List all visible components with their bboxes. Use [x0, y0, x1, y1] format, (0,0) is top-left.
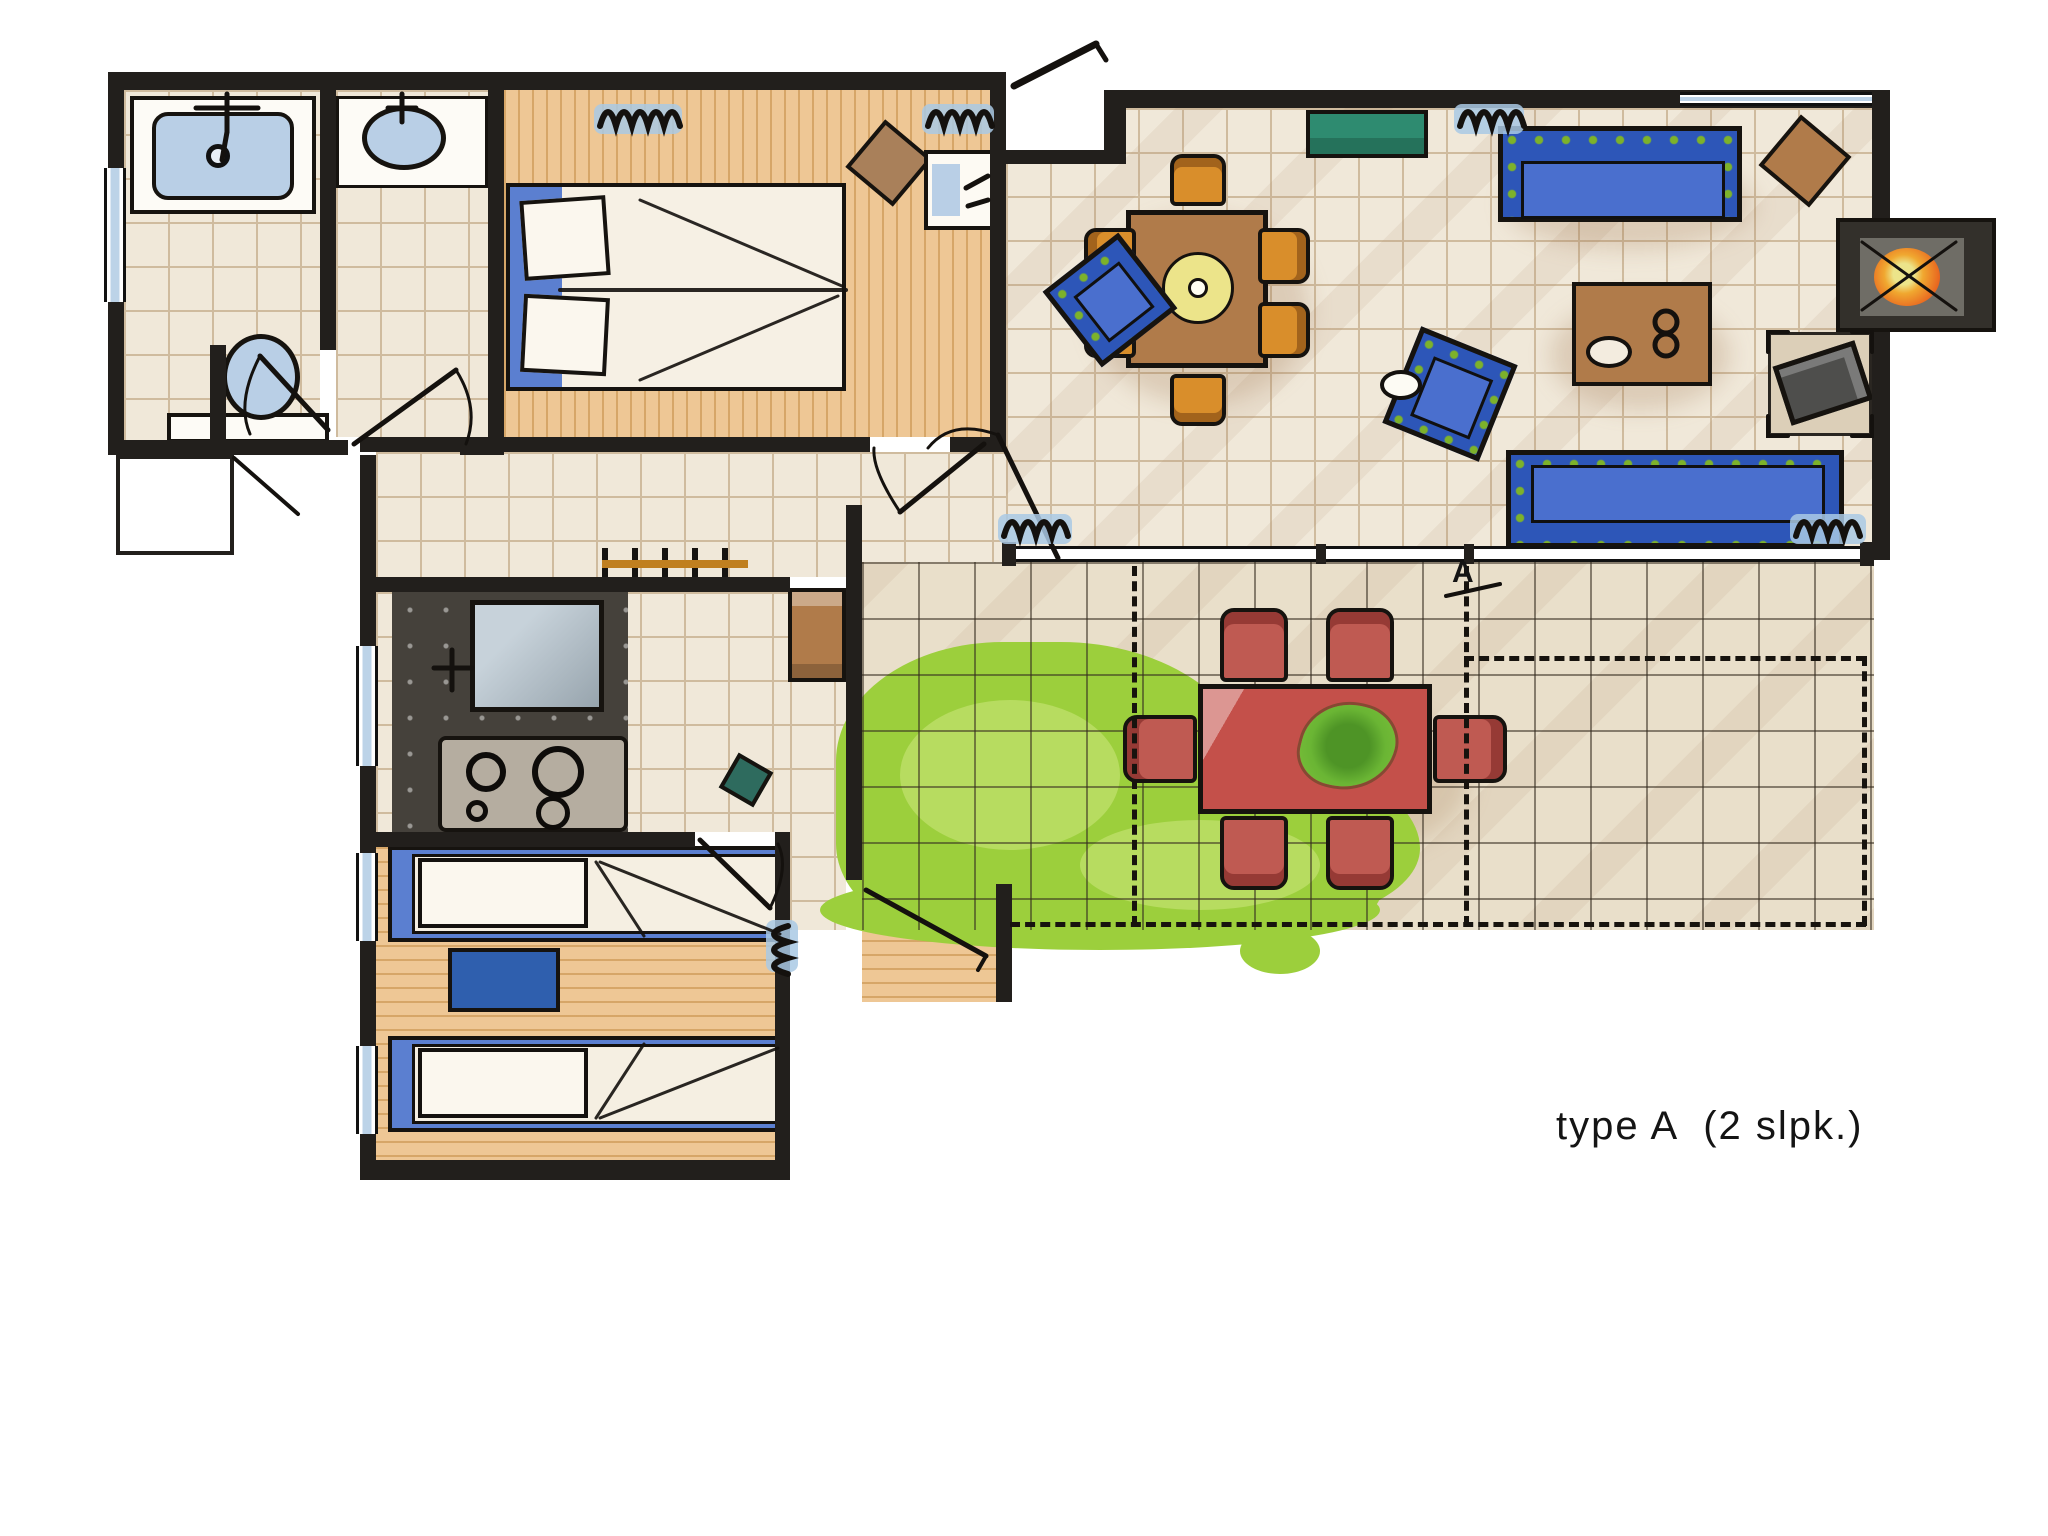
dining-chair-right-2	[1258, 302, 1310, 358]
wall-bedroom1-bottom	[360, 437, 870, 452]
wall-living-left	[990, 72, 1006, 452]
wall-right	[1872, 108, 1890, 560]
terrace-dashed-line-3	[1464, 656, 1866, 661]
dining-chair-bottom	[1170, 374, 1226, 426]
wall-toilet-nook-stub	[210, 345, 226, 440]
glass-front-mullion-2	[1316, 544, 1326, 564]
entrance-niche-bottom-wall	[1006, 150, 1126, 164]
wall-bath-bottom	[108, 440, 348, 455]
wall-bath-washroom-divider	[320, 90, 336, 350]
burner-4	[536, 796, 570, 830]
wall-bedroom2-top	[360, 832, 695, 847]
wall-corridor-terrace	[846, 505, 862, 880]
burner-1	[466, 752, 506, 792]
terrace-dashed-line-4	[1862, 656, 1867, 926]
plan-caption: type A (2 slpk.)	[1556, 1104, 1863, 1149]
kitchen-sink	[470, 600, 604, 712]
stove	[438, 736, 628, 832]
living-top-window	[1680, 92, 1872, 106]
single-bed-1	[388, 846, 788, 942]
glass-front-mullion-1	[1002, 542, 1016, 566]
toilet-bowl	[222, 334, 300, 420]
coffee-table-tray	[1586, 336, 1632, 368]
entrance-niche	[1006, 72, 1104, 150]
wall-hall-kitchen	[360, 577, 790, 592]
burner-2	[532, 746, 584, 798]
wall-washroom-bedroom1-divider	[488, 90, 504, 437]
nightstand	[448, 948, 560, 1012]
armchair-1-seat	[1073, 261, 1154, 342]
coffee-table	[1572, 282, 1712, 386]
wall-top-left-wing	[108, 72, 1006, 90]
patio-chair-right	[1433, 715, 1507, 783]
patio-chair-bottom-1	[1220, 816, 1288, 890]
wall-bedroom2-bottom	[360, 1160, 790, 1180]
sofa-bottom	[1506, 450, 1844, 548]
bedroom1-washstand	[924, 150, 994, 230]
lawn-blob-spot-2	[1240, 928, 1320, 974]
sideboard	[1306, 110, 1428, 158]
sofa-top-seat	[1521, 161, 1725, 219]
shed-door-icon	[234, 458, 298, 514]
single-bed-1-pillow	[418, 858, 588, 928]
coat-rack	[602, 548, 748, 578]
floor-plan: A type A (2 slpk.)	[0, 0, 2048, 1536]
bed-pillow-1	[519, 195, 610, 281]
bathroom-window	[104, 168, 126, 302]
bedroom1-washstand-basin	[932, 164, 960, 216]
terrace-dashed-line-5	[1010, 922, 1866, 927]
sofa-bottom-seat	[1531, 465, 1825, 523]
fire-icon	[1874, 248, 1940, 306]
dining-chair-right-1	[1258, 228, 1310, 284]
bedroom2-window-1	[356, 853, 378, 941]
dining-chair-top	[1170, 154, 1226, 206]
washbasin-bowl	[362, 106, 446, 170]
entrance-niche-jamb	[1104, 108, 1126, 150]
side-lamp-table	[1380, 370, 1422, 400]
terrace-dashed-line-1	[1132, 566, 1137, 926]
bedroom2-window-2	[356, 1046, 378, 1134]
terrace-marker-label: A	[1452, 556, 1474, 590]
patio-chair-top-2	[1326, 608, 1394, 682]
fireplace	[1836, 218, 1996, 332]
glass-front	[1006, 546, 1874, 562]
glass-front-mullion-4	[1860, 542, 1874, 566]
wall-bedroom2-right	[775, 845, 790, 1180]
terrace-dashed-line-2	[1464, 566, 1469, 926]
sofa-top	[1498, 126, 1742, 222]
patio-chair-bottom-2	[1326, 816, 1394, 890]
armchair-2-seat	[1410, 356, 1493, 439]
wall-patio-side	[996, 884, 1012, 1002]
shower-drain-icon	[206, 144, 230, 168]
bed-pillow-2	[520, 294, 610, 376]
single-bed-2-pillow	[418, 1048, 588, 1118]
single-bed-2	[388, 1036, 788, 1132]
wall-bedroom1-bottom-stub	[950, 437, 990, 452]
patio-chair-top-1	[1220, 608, 1288, 682]
kitchen-window	[356, 646, 378, 766]
hall-cabinet	[788, 588, 846, 682]
dining-plate-center	[1188, 278, 1208, 298]
storage-shed	[116, 455, 234, 555]
burner-3	[466, 800, 488, 822]
